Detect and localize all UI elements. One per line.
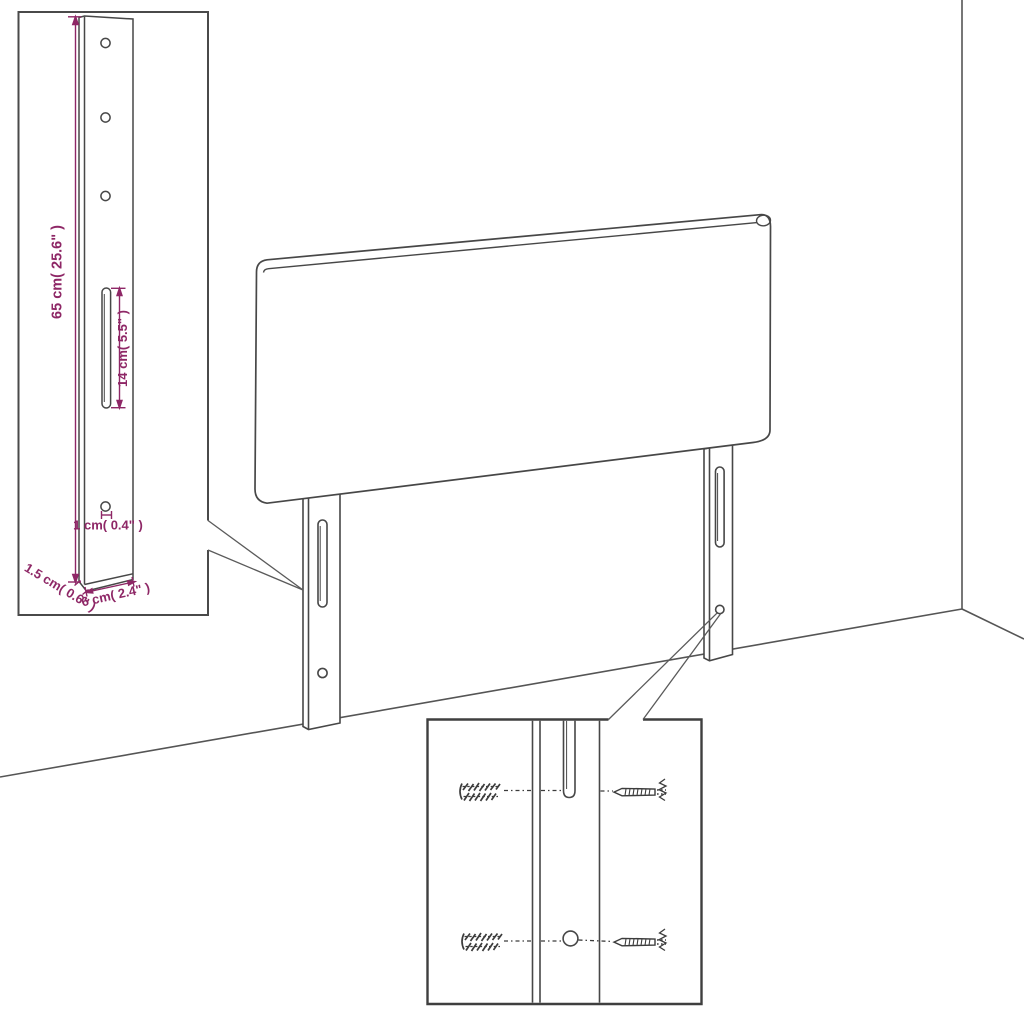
- headboard-diagram: 65 cm( 25.6" ) 14 cm( 5.5" ) 1 cm( 0.4" …: [0, 0, 1024, 1024]
- headboard-panel: [255, 214, 771, 503]
- leg-detail-callout: [208, 521, 303, 591]
- callout-line-4: [643, 614, 721, 720]
- callout-line-1: [208, 521, 303, 591]
- bracket-hole-2: [101, 113, 110, 122]
- hardware-inset-border: [428, 720, 702, 1005]
- bracket-hole-1: [101, 38, 110, 47]
- leg-detail-bracket: [79, 16, 133, 591]
- right-leg-slot: [716, 467, 725, 547]
- headboard-outline: [255, 215, 771, 504]
- bracket-slot: [102, 288, 111, 408]
- hole-diameter-label: 1 cm( 0.4" ): [73, 518, 143, 533]
- floor-line-right: [962, 609, 1024, 639]
- right-leg: [704, 443, 733, 661]
- diagram-canvas: 65 cm( 25.6" ) 14 cm( 5.5" ) 1 cm( 0.4" …: [0, 0, 1024, 1024]
- hardware-detail-inset: [428, 720, 702, 1005]
- bracket-hole-3: [101, 191, 110, 200]
- callout-line-3: [609, 613, 718, 720]
- slot-length-label: 14 cm( 5.5" ): [115, 310, 130, 387]
- left-leg-slot: [318, 520, 327, 607]
- left-leg-hole: [318, 668, 327, 677]
- leg-detail-inset: 65 cm( 25.6" ) 14 cm( 5.5" ) 1 cm( 0.4" …: [19, 12, 209, 615]
- left-leg: [303, 490, 340, 730]
- leg-height-label: 65 cm( 25.6" ): [50, 225, 66, 319]
- bracket-small-hole: [101, 502, 110, 511]
